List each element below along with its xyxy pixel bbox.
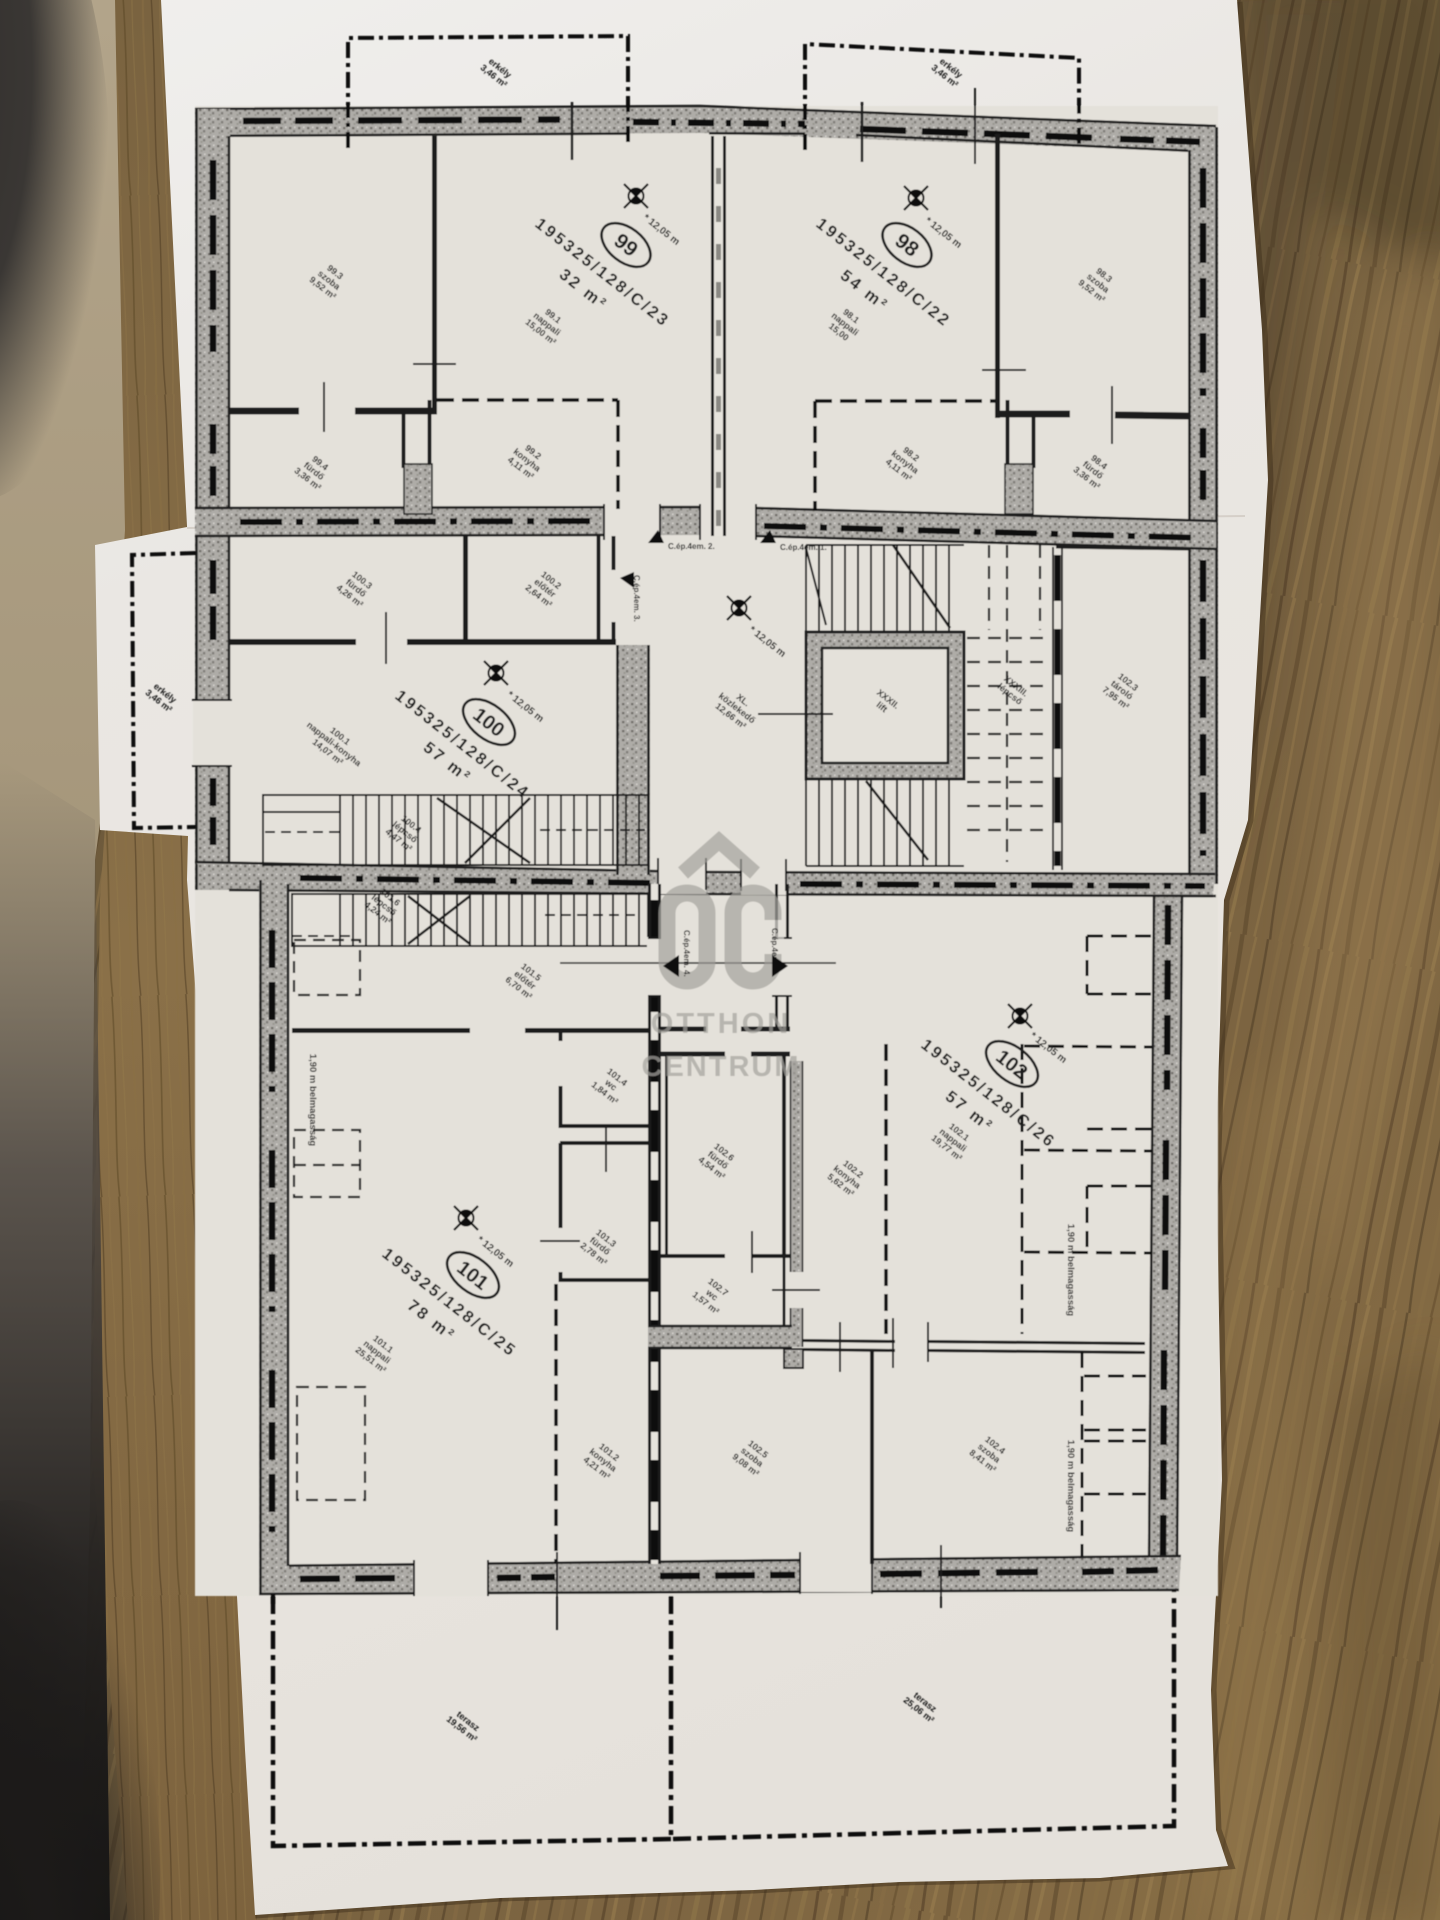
svg-text:1,90 m belmagasság: 1,90 m belmagasság	[1065, 1440, 1076, 1533]
svg-text:C.ép.4em. 4.: C.ép.4em. 4.	[682, 930, 691, 977]
svg-text:1,90 m belmagasság: 1,90 m belmagasság	[1065, 1224, 1076, 1317]
svg-text:OTTHON: OTTHON	[651, 1008, 791, 1040]
svg-text:1,90 m belmagasság: 1,90 m belmagasság	[307, 1054, 318, 1147]
svg-text:C.ép.4em. 1.: C.ép.4em. 1.	[780, 543, 827, 552]
svg-text:C.ép.4em. 2.: C.ép.4em. 2.	[668, 542, 715, 551]
svg-text:CENTRUM: CENTRUM	[642, 1051, 801, 1083]
